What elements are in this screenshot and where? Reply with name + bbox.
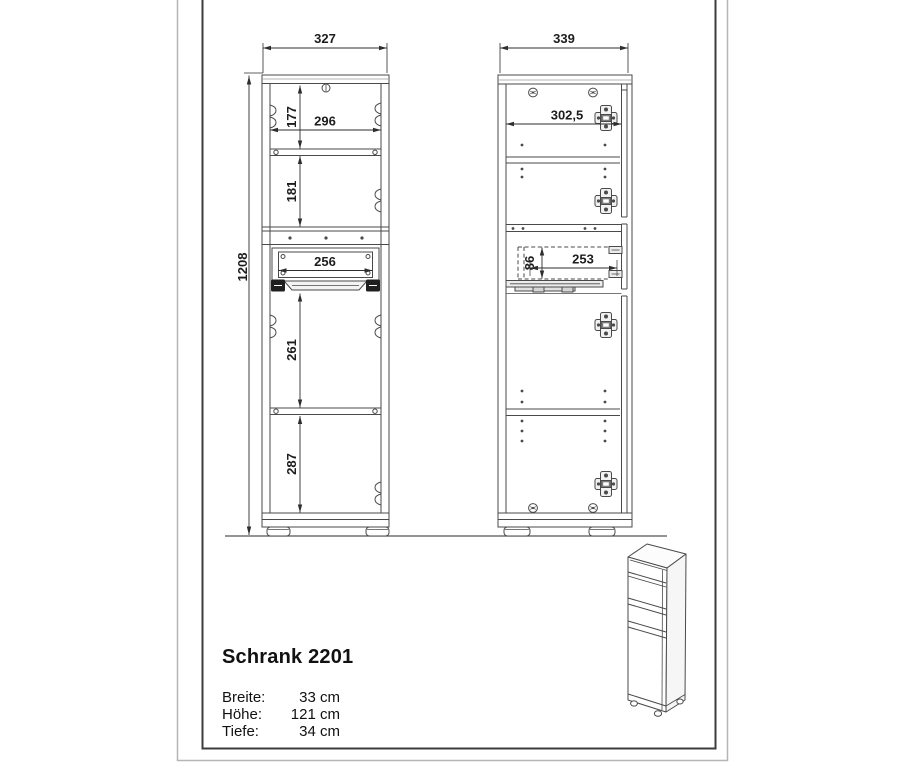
screw-icon <box>322 84 330 92</box>
screw-icon <box>589 88 598 97</box>
side-cabinet-body <box>498 75 632 527</box>
dim-bottom-compartment: 287 <box>284 453 299 475</box>
drawing-canvas: 327 1208 177 296 181 256 261 <box>0 0 900 766</box>
spec-value: 121 cm <box>282 706 340 723</box>
side-feet <box>504 527 615 536</box>
dim-middle-compartment: 181 <box>284 181 299 203</box>
dim-top-compartment: 177 <box>284 106 299 128</box>
model-title: Schrank 2201 <box>222 646 353 669</box>
spec-label: Tiefe: <box>222 723 282 740</box>
cabinet-3d-thumbnail <box>628 544 686 716</box>
dim-drawer-depth: 253 <box>572 252 594 267</box>
spec-label: Höhe: <box>222 706 282 723</box>
dim-overall-height: 1208 <box>235 253 250 282</box>
screw-icon <box>529 504 538 513</box>
spec-row-tiefe: Tiefe: 34 cm <box>222 723 353 740</box>
technical-drawing-page: { "colors": { "drawing_line": "#4a4a4a",… <box>0 0 900 766</box>
dim-overall-width: 327 <box>314 31 336 46</box>
screw-icon <box>529 88 538 97</box>
dim-overall-depth: 339 <box>553 31 575 46</box>
spec-row-breite: Breite: 33 cm <box>222 689 353 706</box>
dim-lower-compartment: 261 <box>284 339 299 361</box>
spec-value: 34 cm <box>282 723 340 740</box>
dim-interior-width: 296 <box>314 114 336 129</box>
title-block: Schrank 2201 Breite: 33 cm Höhe: 121 cm … <box>222 646 353 741</box>
spec-table: Breite: 33 cm Höhe: 121 cm Tiefe: 34 cm <box>222 689 353 741</box>
spec-row-hoehe: Höhe: 121 cm <box>222 706 353 723</box>
side-elevation-view <box>498 75 632 536</box>
front-feet <box>267 527 389 536</box>
screw-icon <box>589 504 598 513</box>
spec-label: Breite: <box>222 689 282 706</box>
front-cabinet-body <box>262 75 389 527</box>
front-elevation-view <box>262 75 389 536</box>
dim-drawer-width: 256 <box>314 254 336 269</box>
dim-interior-depth: 302,5 <box>551 108 584 123</box>
spec-value: 33 cm <box>282 689 340 706</box>
